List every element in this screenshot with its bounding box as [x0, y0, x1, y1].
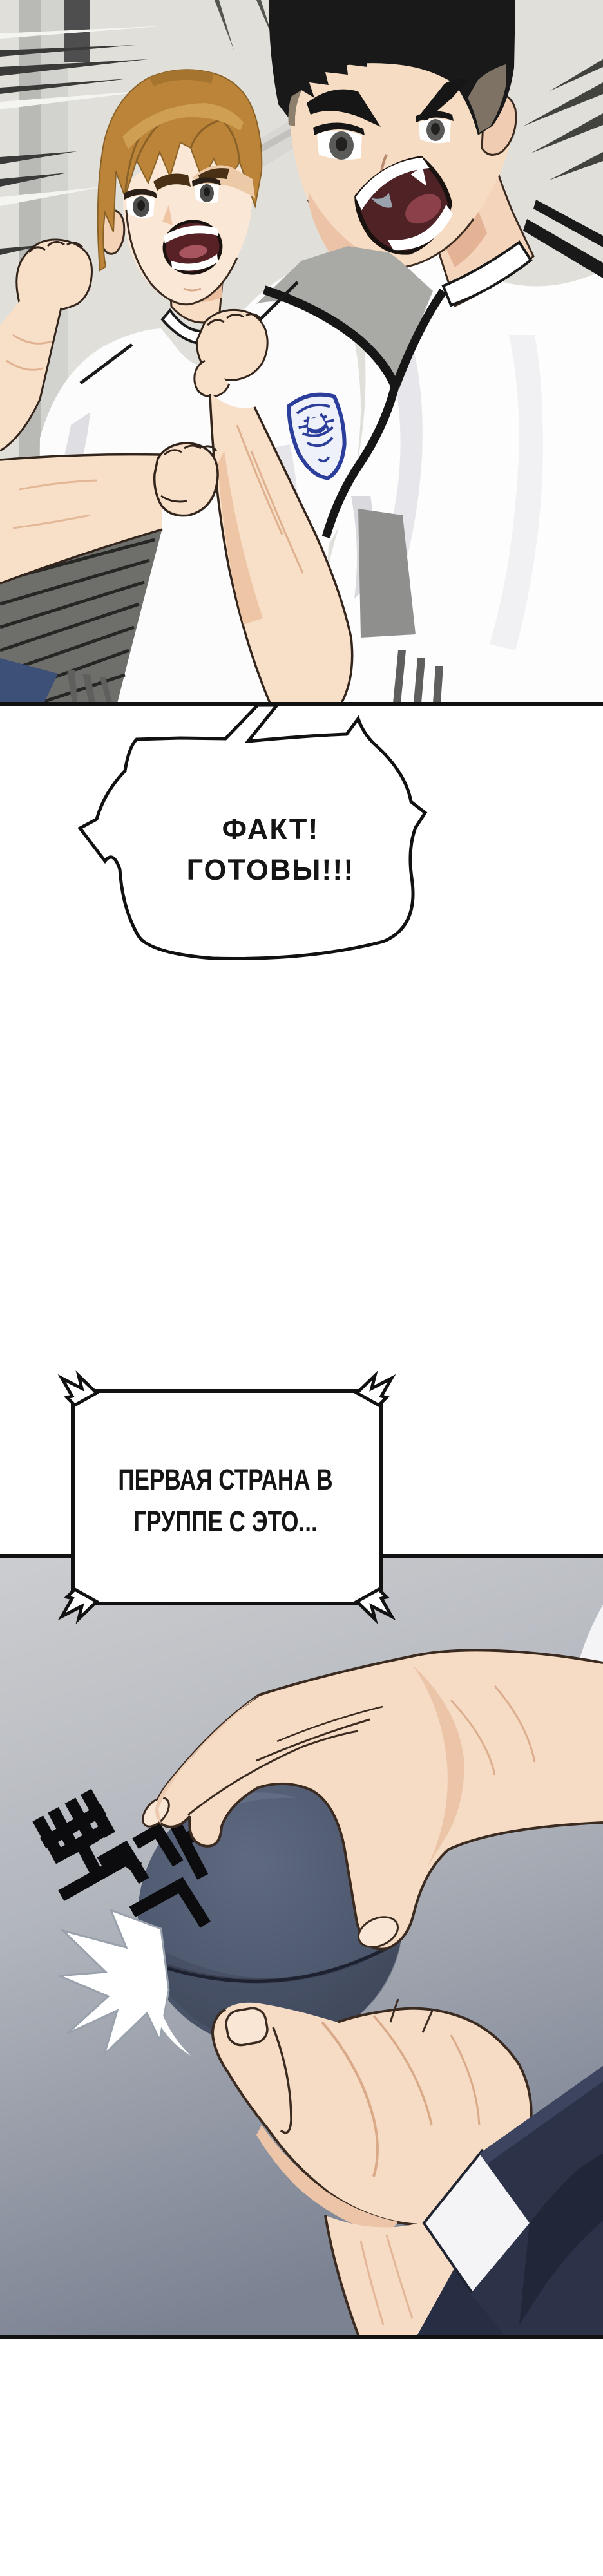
svg-text:ПЕРВАЯ СТРАНА В: ПЕРВАЯ СТРАНА В [118, 1463, 332, 1496]
svg-text:ГОТОВЫ!!!: ГОТОВЫ!!! [187, 853, 355, 886]
svg-text:ФАКТ!: ФАКТ! [222, 813, 320, 846]
svg-text:ГРУППЕ С ЭТО...: ГРУППЕ С ЭТО... [133, 1505, 317, 1538]
